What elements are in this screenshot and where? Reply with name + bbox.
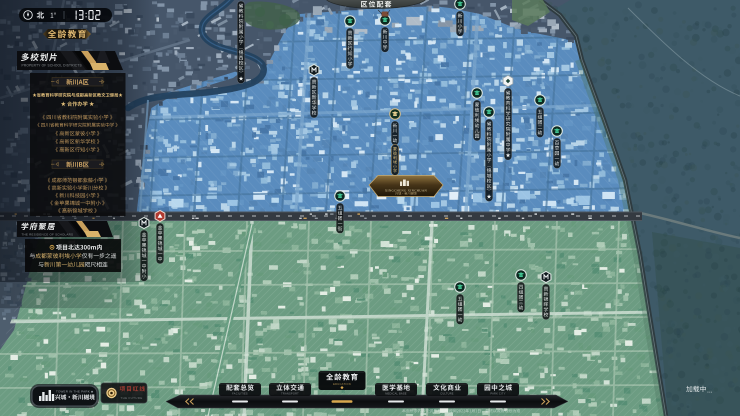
- svg-text:...: ...: [707, 388, 713, 395]
- svg-text:TOWER IN THE PARK ◆: TOWER IN THE PARK ◆: [56, 389, 94, 393]
- svg-text:PROPERTY OF SCHOOL DISTRICTS: PROPERTY OF SCHOOL DISTRICTS: [22, 64, 82, 68]
- svg-text:FACILITIES: FACILITIES: [232, 391, 248, 395]
- svg-text:MEDICAL BASE: MEDICAL BASE: [385, 391, 407, 395]
- svg-text:TRANSPORT: TRANSPORT: [281, 391, 299, 395]
- svg-text:THE RESIDENCE OF SCHOLARS: THE RESIDENCE OF SCHOLARS: [22, 233, 74, 237]
- svg-text:THE FUTURE: THE FUTURE: [121, 396, 143, 400]
- svg-text:EDUCATION: EDUCATION: [333, 382, 351, 386]
- svg-text:PARK CITY: PARK CITY: [490, 391, 505, 395]
- svg-text:CULTURE: CULTURE: [440, 391, 454, 395]
- svg-text:XINGCHENG XINCHUAN: XINGCHENG XINCHUAN: [385, 189, 428, 193]
